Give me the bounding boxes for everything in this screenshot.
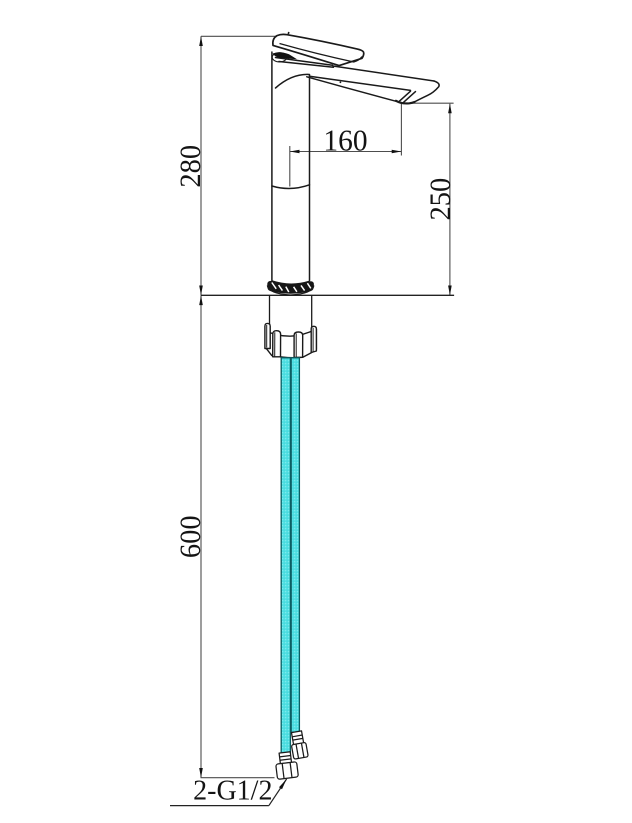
svg-text:600: 600 bbox=[175, 515, 208, 558]
svg-text:2-G1/2: 2-G1/2 bbox=[193, 776, 272, 807]
svg-text:280: 280 bbox=[175, 145, 208, 188]
svg-text:160: 160 bbox=[323, 123, 367, 158]
svg-text:250: 250 bbox=[424, 178, 457, 221]
